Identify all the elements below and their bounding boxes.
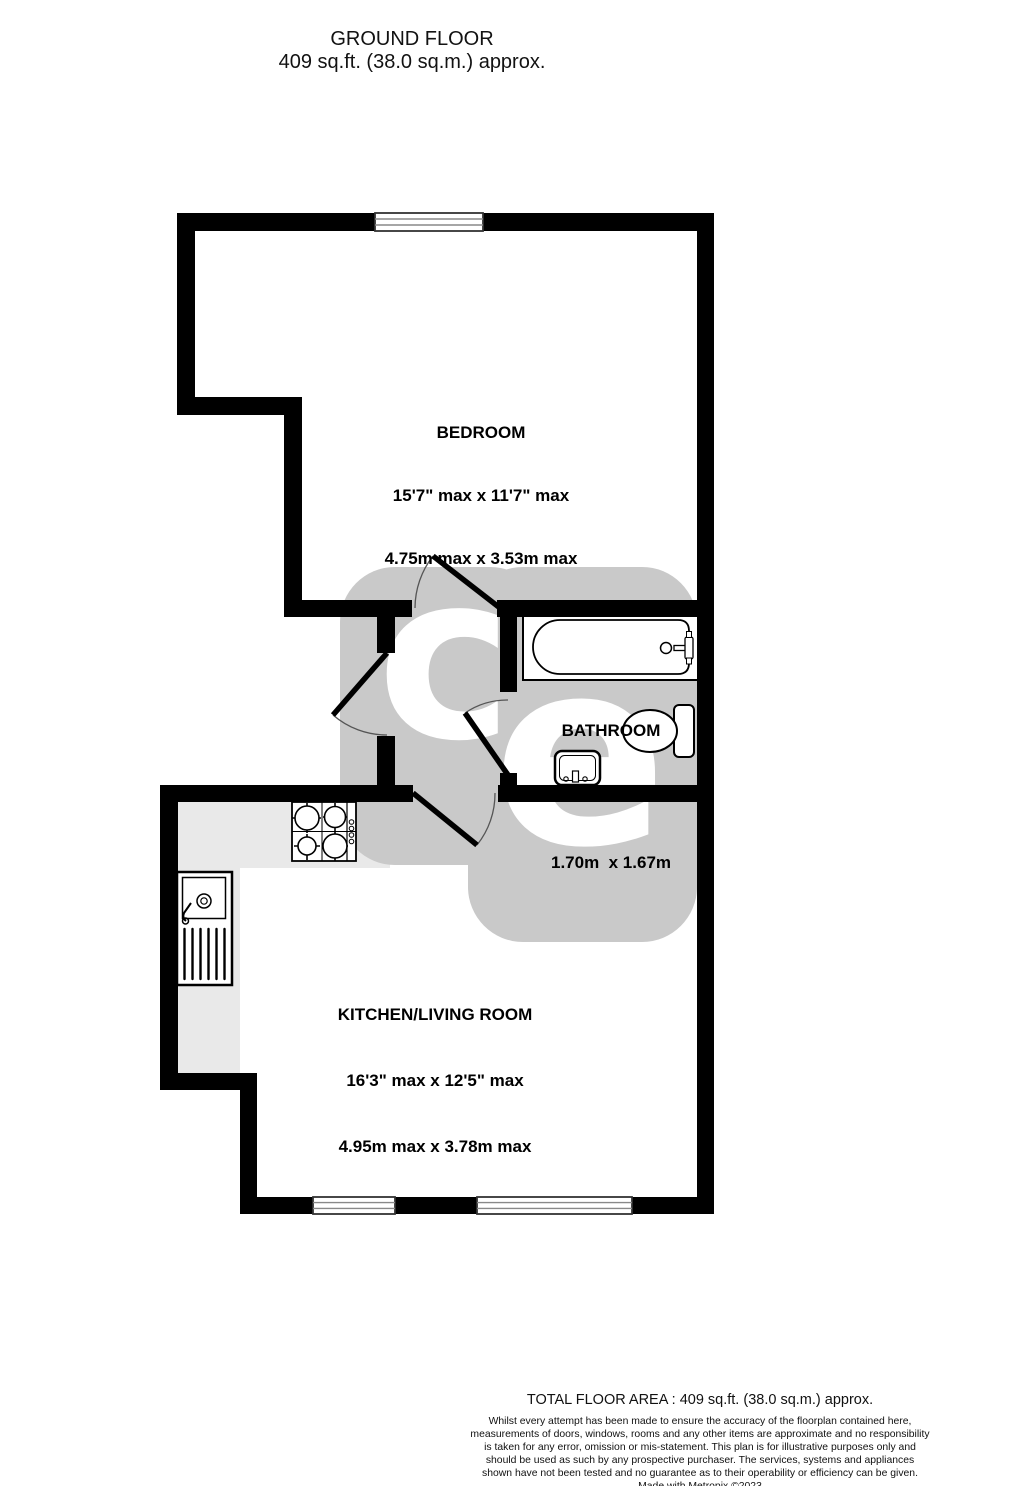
metropix-credit: Made with Metropix ©2023 (470, 1480, 930, 1486)
floorplan-drawing: c e (0, 0, 1020, 1486)
stove-hob (292, 802, 356, 861)
room-name: BEDROOM (385, 422, 578, 443)
room-dims-metric: 4.75m max x 3.53m max (385, 548, 578, 569)
disclaimer-text: Whilst every attempt has been made to en… (470, 1415, 930, 1480)
wall-kitchen-step-v (240, 1073, 257, 1214)
footer: TOTAL FLOOR AREA : 409 sq.ft. (38.0 sq.m… (470, 1391, 930, 1486)
wall-bathroom-west-upper (500, 615, 517, 692)
wall-bedroom-step-h (177, 397, 302, 415)
room-dims-metric: 1.70m x 1.67m (551, 852, 671, 874)
room-name: BATHROOM (551, 720, 671, 742)
wall-left-upper (177, 213, 195, 415)
wall-bedroom-left (284, 397, 302, 617)
kitchen-sink-unit (177, 872, 232, 985)
bathtub (523, 612, 698, 680)
window-bedroom (375, 213, 483, 231)
bath-drain (661, 643, 672, 654)
kitchen-living-label: KITCHEN/LIVING ROOM 16'3" max x 12'5" ma… (338, 960, 533, 1202)
wall-hall-west-upper (377, 615, 395, 653)
bedroom-label: BEDROOM 15'7" max x 11'7" max 4.75m max … (385, 380, 578, 611)
bathroom-label: BATHROOM 5'7" x 5'6" 1.70m x 1.67m (551, 676, 671, 918)
room-dims-imperial: 16'3" max x 12'5" max (338, 1070, 533, 1092)
room-name: KITCHEN/LIVING ROOM (338, 1004, 533, 1026)
total-floor-area: TOTAL FLOOR AREA : 409 sq.ft. (38.0 sq.m… (470, 1391, 930, 1409)
room-dims-imperial: 15'7" max x 11'7" max (385, 485, 578, 506)
room-dims-metric: 4.95m max x 3.78m max (338, 1136, 533, 1158)
room-dims-imperial: 5'7" x 5'6" (551, 786, 671, 808)
wall-right (697, 213, 714, 1214)
wall-kitchen-west (160, 785, 178, 1090)
wall-kitchen-north-left (160, 785, 413, 802)
floorplan-page: GROUND FLOOR 409 sq.ft. (38.0 sq.m.) app… (0, 0, 1020, 1486)
